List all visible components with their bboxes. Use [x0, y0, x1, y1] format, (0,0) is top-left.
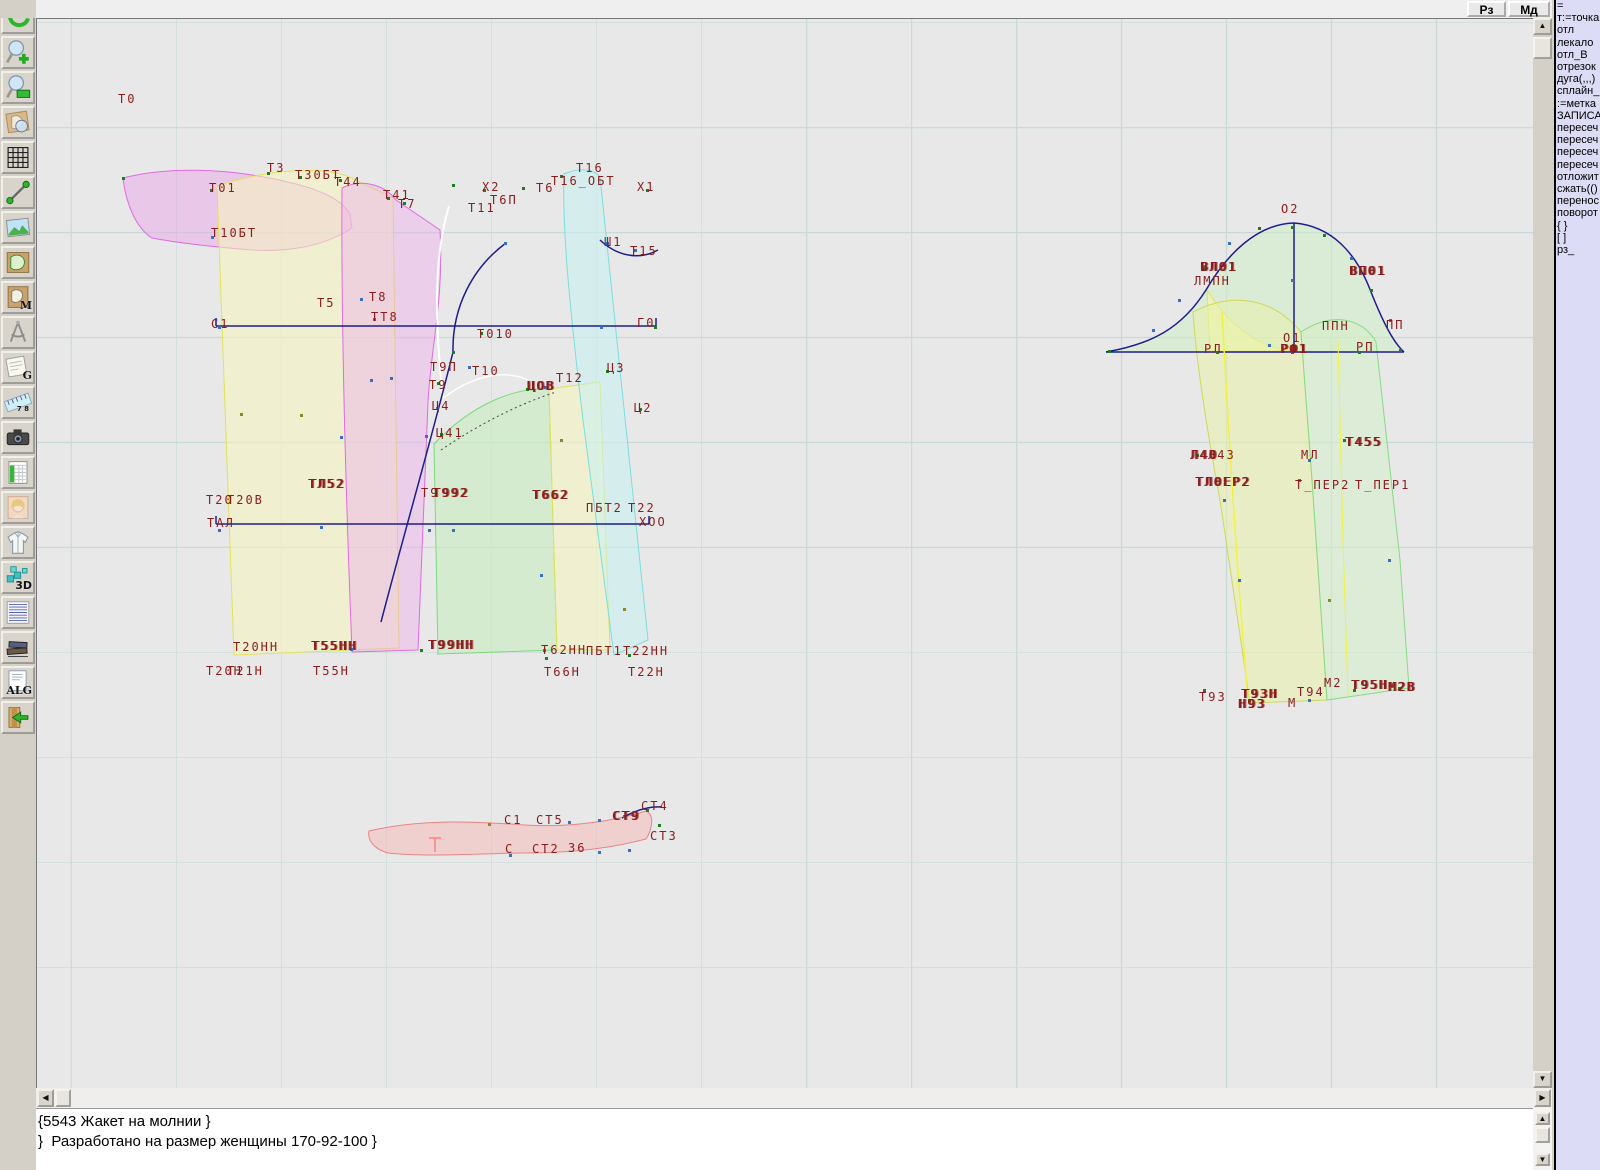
command-line[interactable]: отл [1556, 24, 1600, 36]
command-line[interactable]: { } [1556, 220, 1600, 232]
zoom-window-button[interactable] [1, 71, 35, 104]
command-panel[interactable]: =т:=точкаотллекалоотл_Вотрезокдуга(,,,)с… [1554, 0, 1600, 1170]
vscroll-thumb[interactable] [1533, 37, 1552, 59]
view-piece-button[interactable] [1, 106, 35, 139]
camera-button[interactable] [1, 421, 35, 454]
spreadsheet-button[interactable] [1, 456, 35, 489]
zoom-in-button[interactable] [1, 36, 35, 69]
command-line[interactable]: отл_В [1556, 49, 1600, 61]
md-button[interactable]: Мд [1508, 1, 1550, 17]
jacket-button[interactable] [1, 526, 35, 559]
pattern-piece-button[interactable] [1, 246, 35, 279]
grazia-cad-window: Т0Т3Т30БТТ44Т41Т7Т01Т10БТХ2Т6ПТ11Т6Т16Т1… [0, 0, 1600, 1170]
ruler-label: 7 8 [17, 405, 29, 413]
command-line[interactable]: пересеч [1556, 159, 1600, 171]
command-line[interactable]: сплайн_ [1556, 85, 1600, 97]
scroll-right-icon[interactable]: ▶ [1534, 1089, 1551, 1107]
books-button[interactable] [1, 631, 35, 664]
threed-button[interactable]: 3D [1, 561, 35, 594]
console-scroll-up-icon[interactable]: ▲ [1535, 1112, 1550, 1125]
command-line[interactable]: сжать(() [1556, 183, 1600, 195]
command-line[interactable]: т:=точка [1556, 12, 1600, 24]
console-line: {5543 Жакет на молнии } [38, 1112, 1533, 1132]
grazia-g-button[interactable]: G [1, 351, 35, 384]
command-line[interactable]: лекало [1556, 37, 1600, 49]
portrait-button[interactable] [1, 491, 35, 524]
console-line: } Разработано на размер женщины 170-92-1… [38, 1132, 1533, 1152]
alg-label: ALG [6, 684, 32, 697]
canvas-hscrollbar[interactable]: ◀ ▶ [36, 1088, 1552, 1108]
text-list-button[interactable] [1, 596, 35, 629]
scroll-up-icon[interactable]: ▲ [1533, 18, 1552, 35]
grazia-g-label: G [23, 369, 32, 382]
command-line[interactable]: пересеч [1556, 134, 1600, 146]
command-line[interactable]: поворот [1556, 207, 1600, 219]
command-line[interactable]: [ ] [1556, 232, 1600, 244]
threed-label: 3D [15, 579, 32, 592]
compasses-button[interactable] [1, 316, 35, 349]
alg-button[interactable]: ALG [1, 666, 35, 699]
command-line[interactable]: рз_ [1556, 244, 1600, 256]
rz-button[interactable]: Рз [1467, 1, 1506, 17]
ruler-button[interactable]: 7 8 [1, 386, 35, 419]
command-line[interactable]: = [1556, 0, 1600, 12]
image-button[interactable] [1, 211, 35, 244]
command-line[interactable]: :=метка [1556, 98, 1600, 110]
console-scroll-down-icon[interactable]: ▼ [1535, 1153, 1550, 1166]
toolbar: MG7 83DALG [0, 0, 36, 1170]
scroll-down-icon[interactable]: ▼ [1533, 1071, 1552, 1088]
message-console[interactable]: {5543 Жакет на молнии }} Разработано на … [36, 1108, 1533, 1170]
command-line[interactable]: дуга(,,,) [1556, 73, 1600, 85]
grid-button[interactable] [1, 141, 35, 174]
exit-button[interactable] [1, 701, 35, 734]
command-line[interactable]: отложит [1556, 171, 1600, 183]
command-line[interactable]: перенос [1556, 195, 1600, 207]
console-vscrollbar[interactable]: ▲ ▼ [1533, 1108, 1552, 1170]
command-line[interactable]: ЗАПИСА [1556, 110, 1600, 122]
command-line[interactable]: отрезок [1556, 61, 1600, 73]
pattern-m-label: M [20, 299, 32, 312]
top-strip [36, 0, 1552, 18]
canvas-vscrollbar[interactable]: ▲ ▼ [1533, 18, 1552, 1088]
pattern-m-button[interactable]: M [1, 281, 35, 314]
console-scroll-thumb[interactable] [1535, 1127, 1550, 1143]
hscroll-thumb[interactable] [55, 1089, 71, 1107]
top-left-corner [0, 0, 36, 18]
segment-button[interactable] [1, 176, 35, 209]
command-line[interactable]: пересеч [1556, 122, 1600, 134]
command-line[interactable]: пересеч [1556, 146, 1600, 158]
pattern-canvas[interactable] [36, 18, 1533, 1088]
scroll-left-icon[interactable]: ◀ [37, 1089, 54, 1107]
